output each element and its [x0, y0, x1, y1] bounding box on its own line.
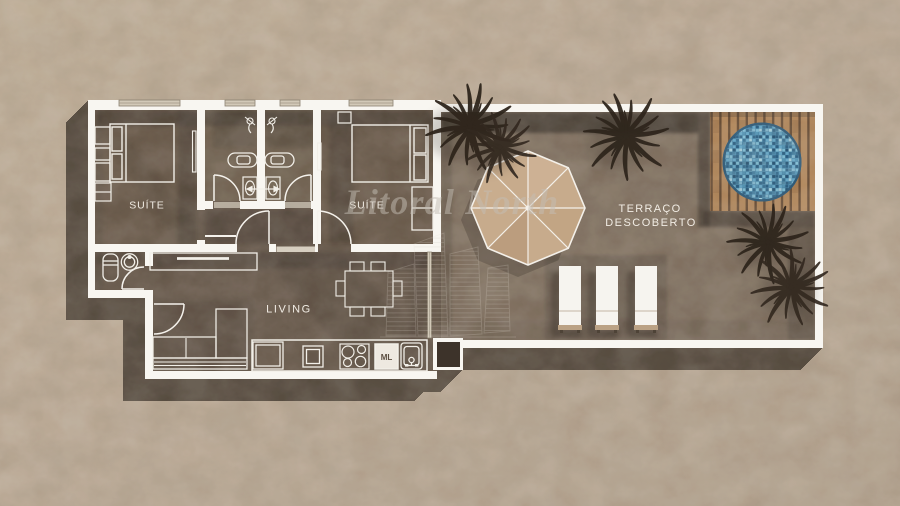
- svg-text:LIVING: LIVING: [266, 304, 312, 316]
- svg-text:SUÍTE: SUÍTE: [129, 199, 164, 212]
- svg-text:ML: ML: [381, 353, 393, 362]
- svg-text:Litoral North: Litoral North: [344, 182, 560, 222]
- svg-text:TERRAÇO: TERRAÇO: [619, 203, 682, 215]
- svg-text:DESCOBERTO: DESCOBERTO: [605, 217, 697, 229]
